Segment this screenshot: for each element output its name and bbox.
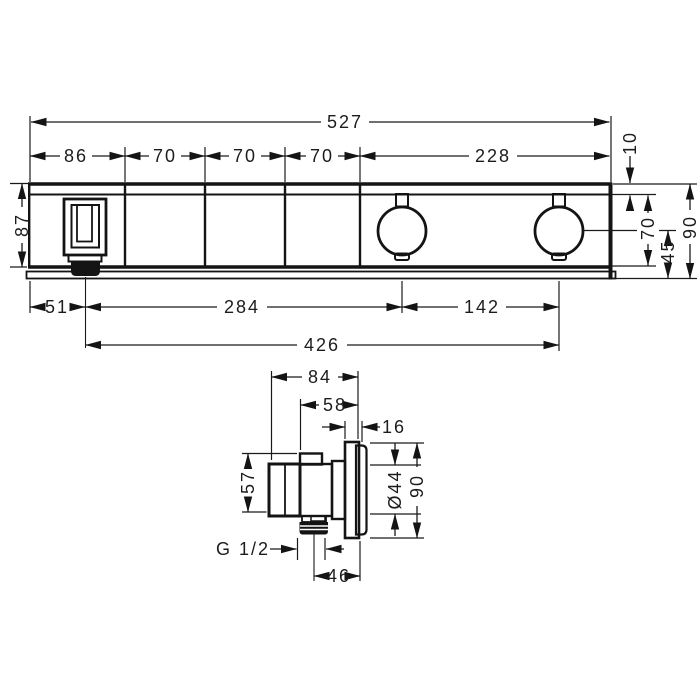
knob-right — [535, 194, 583, 260]
dim-edge-to-outlet: 51 — [45, 297, 69, 317]
front-view-dimensions: 527 86 70 70 70 228 87 10 — [12, 112, 700, 355]
dim-depth-total: 84 — [308, 367, 332, 387]
side-view-body — [269, 442, 367, 538]
dim-length-total: 527 — [327, 112, 363, 132]
outlet-module — [64, 199, 106, 276]
dim-body-height: 57 — [238, 470, 258, 494]
flange — [332, 461, 345, 519]
dim-knob-spacing: 142 — [464, 297, 500, 317]
knob-left — [378, 194, 426, 260]
thread-connector — [300, 522, 329, 535]
dim-height-total: 90 — [680, 215, 700, 239]
dim-seg-4: 70 — [310, 146, 334, 166]
label-thread: G 1/2 — [216, 539, 270, 559]
side-view-dimensions: 84 58 16 57 Ø44 90 G 1/2 — [216, 367, 427, 586]
dim-center-to-bottom: 45 — [658, 239, 678, 263]
dim-outlet-to-knob2: 426 — [304, 335, 340, 355]
dim-seg-2: 70 — [153, 146, 177, 166]
front-view: 527 86 70 70 70 228 87 10 — [10, 112, 700, 355]
dim-plate-height: 90 — [407, 474, 427, 498]
dim-height-body: 87 — [12, 213, 32, 237]
front-view-extension-lines — [10, 116, 697, 351]
technical-drawing: 527 86 70 70 70 228 87 10 — [0, 0, 700, 700]
wall-plate — [27, 272, 616, 279]
dim-outlet-to-knob1: 284 — [224, 297, 260, 317]
dim-seg-1: 86 — [64, 146, 88, 166]
front-view-body — [27, 183, 616, 280]
dim-depth-front: 58 — [323, 395, 347, 415]
dim-axis-to-face: 46 — [327, 566, 351, 586]
dim-seg-5: 228 — [475, 146, 511, 166]
escutcheon-cap — [356, 446, 367, 535]
dim-plate-depth: 16 — [382, 417, 406, 437]
outlet-connector — [71, 262, 100, 277]
dim-handle-height: 70 — [638, 216, 658, 240]
valve-body-mid — [300, 464, 332, 516]
side-view: 84 58 16 57 Ø44 90 G 1/2 — [216, 367, 427, 586]
dim-seg-3: 70 — [233, 146, 257, 166]
dim-knob-diameter: Ø44 — [385, 469, 405, 509]
dim-offset-top: 10 — [620, 131, 640, 155]
